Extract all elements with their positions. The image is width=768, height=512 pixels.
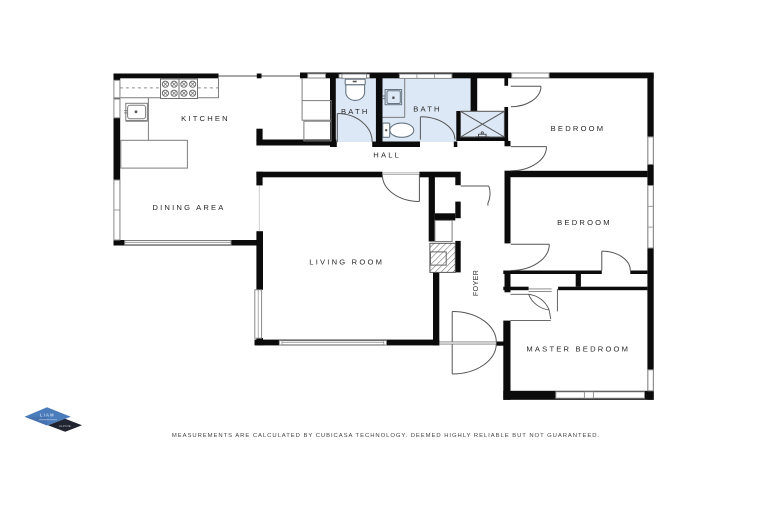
svg-text:KITCHEN: KITCHEN (181, 114, 230, 123)
svg-text:DINING AREA: DINING AREA (152, 203, 225, 212)
svg-text:ALPINE: ALPINE (59, 424, 71, 428)
svg-text:BEDROOM: BEDROOM (551, 124, 606, 133)
svg-text:MEASUREMENTS ARE CALCULATED BY: MEASUREMENTS ARE CALCULATED BY CUBICASA … (172, 433, 600, 439)
svg-text:MASTER BEDROOM: MASTER BEDROOM (526, 344, 630, 353)
svg-text:FOYER: FOYER (471, 270, 480, 296)
svg-text:HALL: HALL (373, 150, 401, 159)
svg-text:LIAM: LIAM (40, 413, 55, 418)
svg-text:BATH: BATH (341, 107, 370, 116)
svg-text:LIVING ROOM: LIVING ROOM (309, 257, 384, 266)
svg-text:BATH: BATH (413, 104, 442, 113)
svg-text:BEDROOM: BEDROOM (557, 218, 612, 227)
